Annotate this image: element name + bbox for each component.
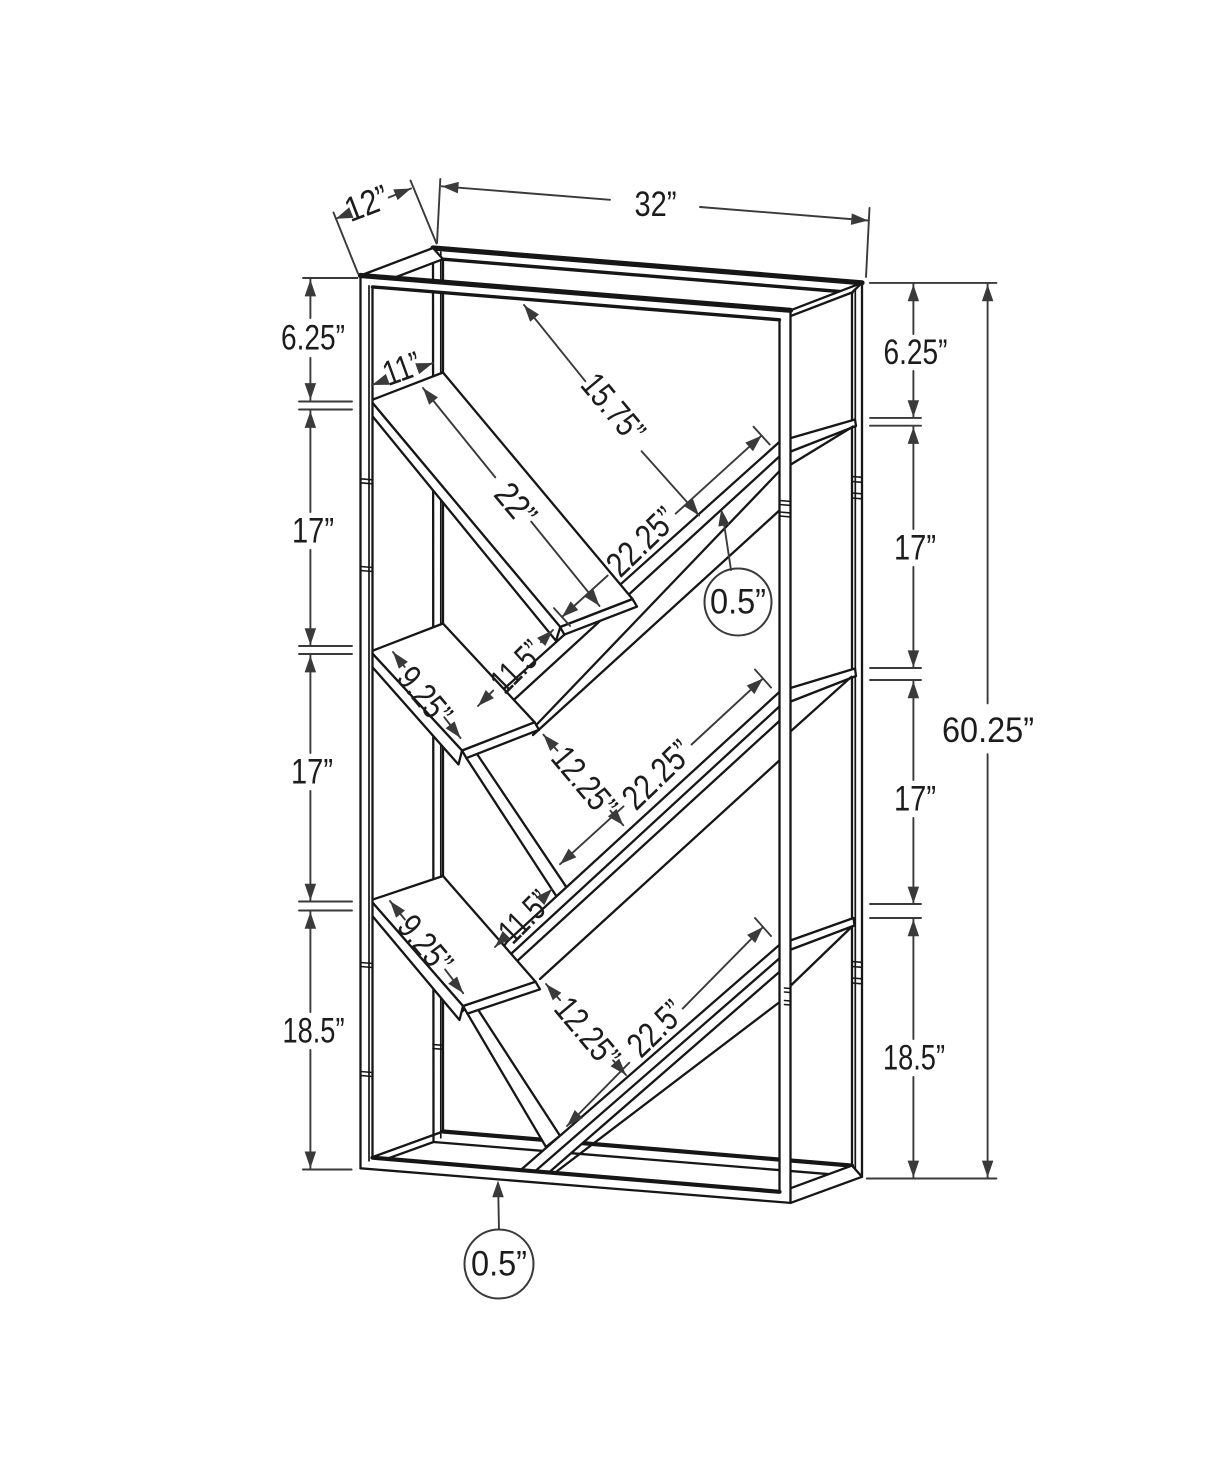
- svg-text:6.25”: 6.25”: [884, 333, 948, 372]
- svg-text:18.5”: 18.5”: [883, 1039, 945, 1078]
- svg-text:32”: 32”: [635, 185, 677, 224]
- svg-text:17”: 17”: [292, 512, 334, 551]
- svg-text:60.25”: 60.25”: [942, 711, 1034, 750]
- svg-text:18.5”: 18.5”: [283, 1012, 345, 1051]
- svg-text:0.5”: 0.5”: [710, 583, 766, 622]
- svg-text:17”: 17”: [894, 780, 936, 819]
- svg-text:0.5”: 0.5”: [471, 1245, 527, 1284]
- svg-text:6.25”: 6.25”: [281, 319, 345, 358]
- svg-text:17”: 17”: [894, 529, 936, 568]
- svg-text:17”: 17”: [291, 753, 333, 792]
